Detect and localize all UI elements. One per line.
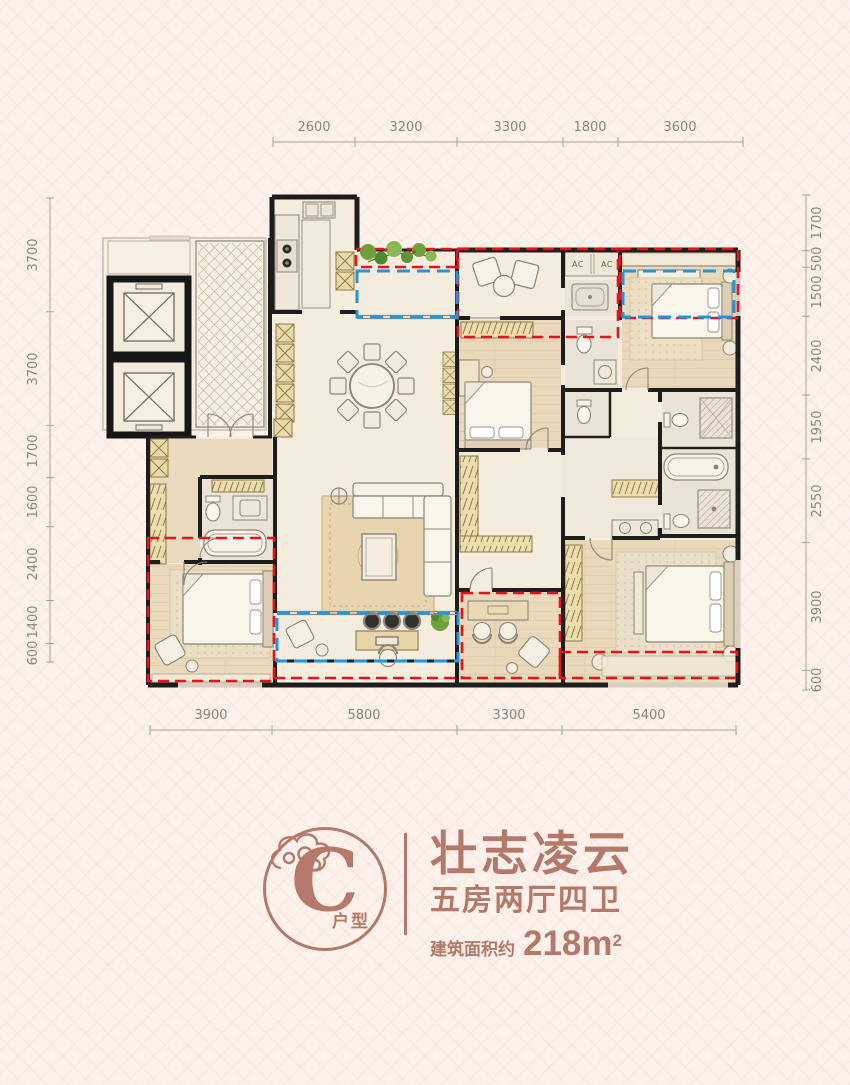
dimension-labels-bottom: 3900 5800 3300 5400	[194, 708, 665, 723]
dim-label: 1500	[810, 275, 825, 308]
dim-label: 600	[810, 668, 825, 693]
pillow	[470, 427, 494, 438]
dim-label: 1700	[26, 434, 41, 467]
unit-area: 建筑面积约 218m 2	[430, 926, 760, 961]
dining-table	[350, 364, 394, 408]
area-value: 218m	[523, 926, 613, 961]
dim-label: 1800	[573, 120, 606, 135]
coffee-table	[362, 534, 396, 580]
dim-label: 3700	[26, 238, 41, 271]
dim-label: 500	[810, 247, 825, 272]
pillow	[710, 572, 721, 600]
dim-label: 1400	[26, 605, 41, 638]
dimension-labels-left: 3700 3700 1700 1600 2400 1400 600	[26, 238, 41, 665]
dim-label: 3700	[26, 352, 41, 385]
unit-type-label: 户型	[332, 907, 370, 932]
dim-label: 2400	[810, 339, 825, 372]
chair	[380, 650, 397, 667]
desk	[468, 601, 528, 620]
ac-platform: AC AC	[565, 252, 620, 276]
elevator-block	[103, 236, 266, 435]
dimension-labels-right: 1700 500 1500 2400 1950 2550 3900 600	[810, 206, 825, 692]
wardrobe	[612, 480, 660, 497]
ac-label-left: AC	[572, 260, 584, 269]
dim-label: 1700	[810, 206, 825, 239]
title-divider	[404, 833, 407, 935]
stool	[364, 613, 380, 629]
dim-label: 2400	[26, 547, 41, 580]
unit-name: 壮志凌云	[430, 829, 760, 878]
area-superscript: 2	[613, 932, 622, 949]
dim-label: 5400	[632, 708, 665, 723]
dim-label: 3300	[492, 708, 525, 723]
unit-layout: 五房两厅四卫	[430, 885, 760, 917]
toilet	[206, 503, 220, 521]
dimension-labels-top: 2600 3200 3300 1800 3600	[297, 120, 696, 135]
wc	[577, 400, 591, 424]
sofa	[353, 483, 443, 496]
entry-cabinet-icon	[274, 419, 292, 437]
cloud-ornament-icon	[268, 830, 346, 876]
dim-label: 2550	[810, 484, 825, 517]
living-room	[322, 483, 451, 614]
bay-window-seat	[602, 656, 736, 676]
dim-label: 2600	[297, 120, 330, 135]
toilet	[672, 414, 688, 427]
dim-label: 1950	[810, 410, 825, 443]
dim-label: 3900	[194, 708, 227, 723]
shower-bath	[572, 284, 608, 310]
dim-label: 5800	[347, 708, 380, 723]
toilet	[673, 515, 689, 528]
side-table	[494, 276, 515, 297]
chair	[474, 623, 491, 640]
dim-label: 3900	[810, 590, 825, 623]
pillow	[708, 288, 719, 308]
dim-label: 600	[26, 641, 41, 666]
master-wardrobe	[565, 545, 582, 641]
bench	[634, 572, 643, 634]
pillow	[250, 580, 261, 604]
dim-label: 1600	[26, 485, 41, 518]
shoe-cabinet	[150, 484, 166, 564]
area-prefix: 建筑面积约	[430, 941, 515, 961]
ac-label-right: AC	[601, 260, 613, 269]
title-block: 壮志凌云 五房两厅四卫 建筑面积约 218m 2	[430, 829, 760, 961]
dim-label: 3600	[663, 120, 696, 135]
dim-label: 3300	[493, 120, 526, 135]
floorplan-page: AC AC	[0, 0, 850, 1085]
unit-logo-circle: C 户型	[263, 827, 387, 951]
toilet	[578, 407, 591, 424]
dim-label: 3200	[389, 120, 422, 135]
sideboard-icon	[276, 324, 294, 342]
kitchen-cabinet-icon	[336, 252, 354, 270]
bay-window-seat	[622, 253, 736, 266]
